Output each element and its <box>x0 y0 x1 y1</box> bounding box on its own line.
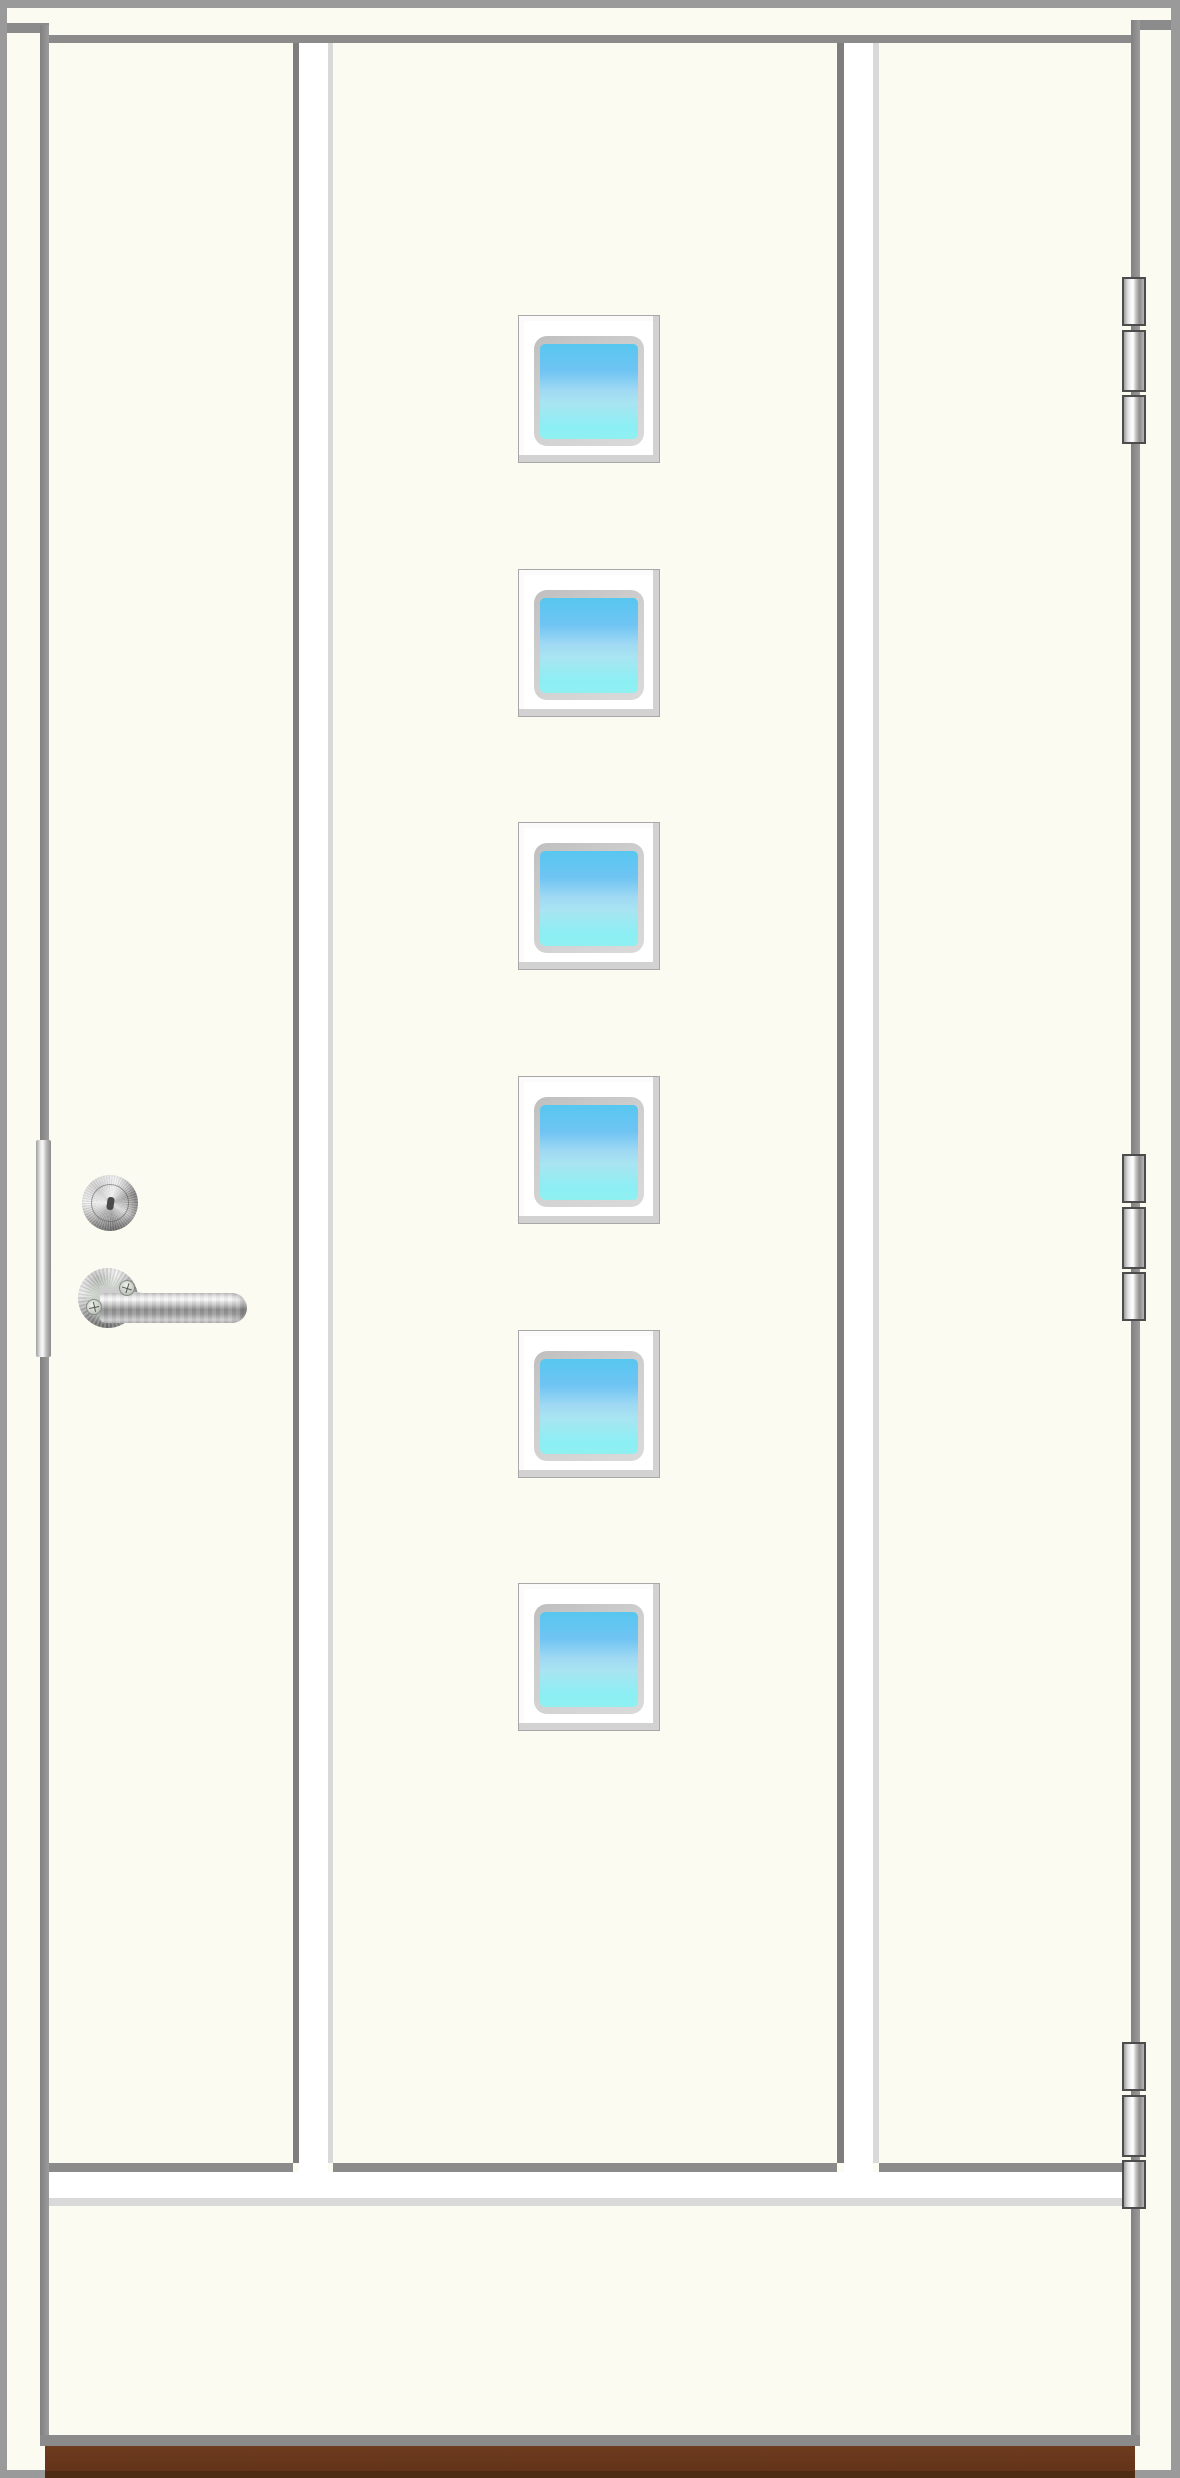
window-glass <box>540 344 638 439</box>
window-inset-frame <box>534 336 644 446</box>
window-inset-frame <box>534 1351 644 1461</box>
bottom-groove-shadow-segment <box>49 2163 293 2172</box>
lever-handle-icon <box>100 1293 247 1323</box>
hinge-icon <box>1122 1154 1146 1321</box>
frame-border-top <box>0 0 1180 8</box>
hinge-icon <box>1122 277 1146 444</box>
door-window <box>518 822 660 970</box>
hinge-knuckle <box>1122 2042 1146 2091</box>
kick-rail-line <box>40 2435 1140 2446</box>
window-glass <box>540 598 638 693</box>
window-glass <box>540 1359 638 1454</box>
hinge-knuckle <box>1122 1207 1146 1269</box>
hinge-knuckle <box>1122 395 1146 444</box>
bottom-groove-shadow-segment <box>879 2163 1131 2172</box>
door-window <box>518 1583 660 1731</box>
door-scene <box>0 0 1180 2478</box>
frame-border-right <box>1171 0 1180 2478</box>
panel-groove-left-highlight <box>328 43 333 2163</box>
hinge-knuckle <box>1122 277 1146 326</box>
hinge-knuckle <box>1122 2160 1146 2209</box>
threshold <box>45 2446 1135 2471</box>
window-inset-frame <box>534 1604 644 1714</box>
door-window <box>518 315 660 463</box>
panel-groove-left-face <box>299 43 328 2198</box>
bottom-groove-face <box>49 2172 1131 2198</box>
hinge-knuckle <box>1122 1154 1146 1203</box>
panel-groove-right-face <box>844 43 873 2198</box>
bottom-groove-highlight <box>49 2198 1131 2206</box>
door-window <box>518 1330 660 1478</box>
door-window <box>518 569 660 717</box>
lock-cylinder-icon <box>82 1175 138 1231</box>
window-glass <box>540 1105 638 1200</box>
window-glass <box>540 1612 638 1707</box>
hinge-knuckle <box>1122 1272 1146 1321</box>
door-window <box>518 1076 660 1224</box>
bottom-groove-shadow-segment <box>333 2163 837 2172</box>
window-inset-frame <box>534 843 644 953</box>
frame-border-left <box>0 0 7 2478</box>
hinge-icon <box>1122 2042 1146 2209</box>
threshold-shadow-edge <box>45 2471 1135 2478</box>
hinge-knuckle <box>1122 330 1146 392</box>
window-inset-frame <box>534 1097 644 1207</box>
strike-plate-icon <box>36 1140 51 1357</box>
panel-groove-right-highlight <box>873 43 879 2163</box>
panel-groove-right-shadow <box>837 43 844 2163</box>
window-glass <box>540 851 638 946</box>
window-inset-frame <box>534 590 644 700</box>
hinge-knuckle <box>1122 2095 1146 2157</box>
door-slab-top-line <box>40 35 1140 43</box>
